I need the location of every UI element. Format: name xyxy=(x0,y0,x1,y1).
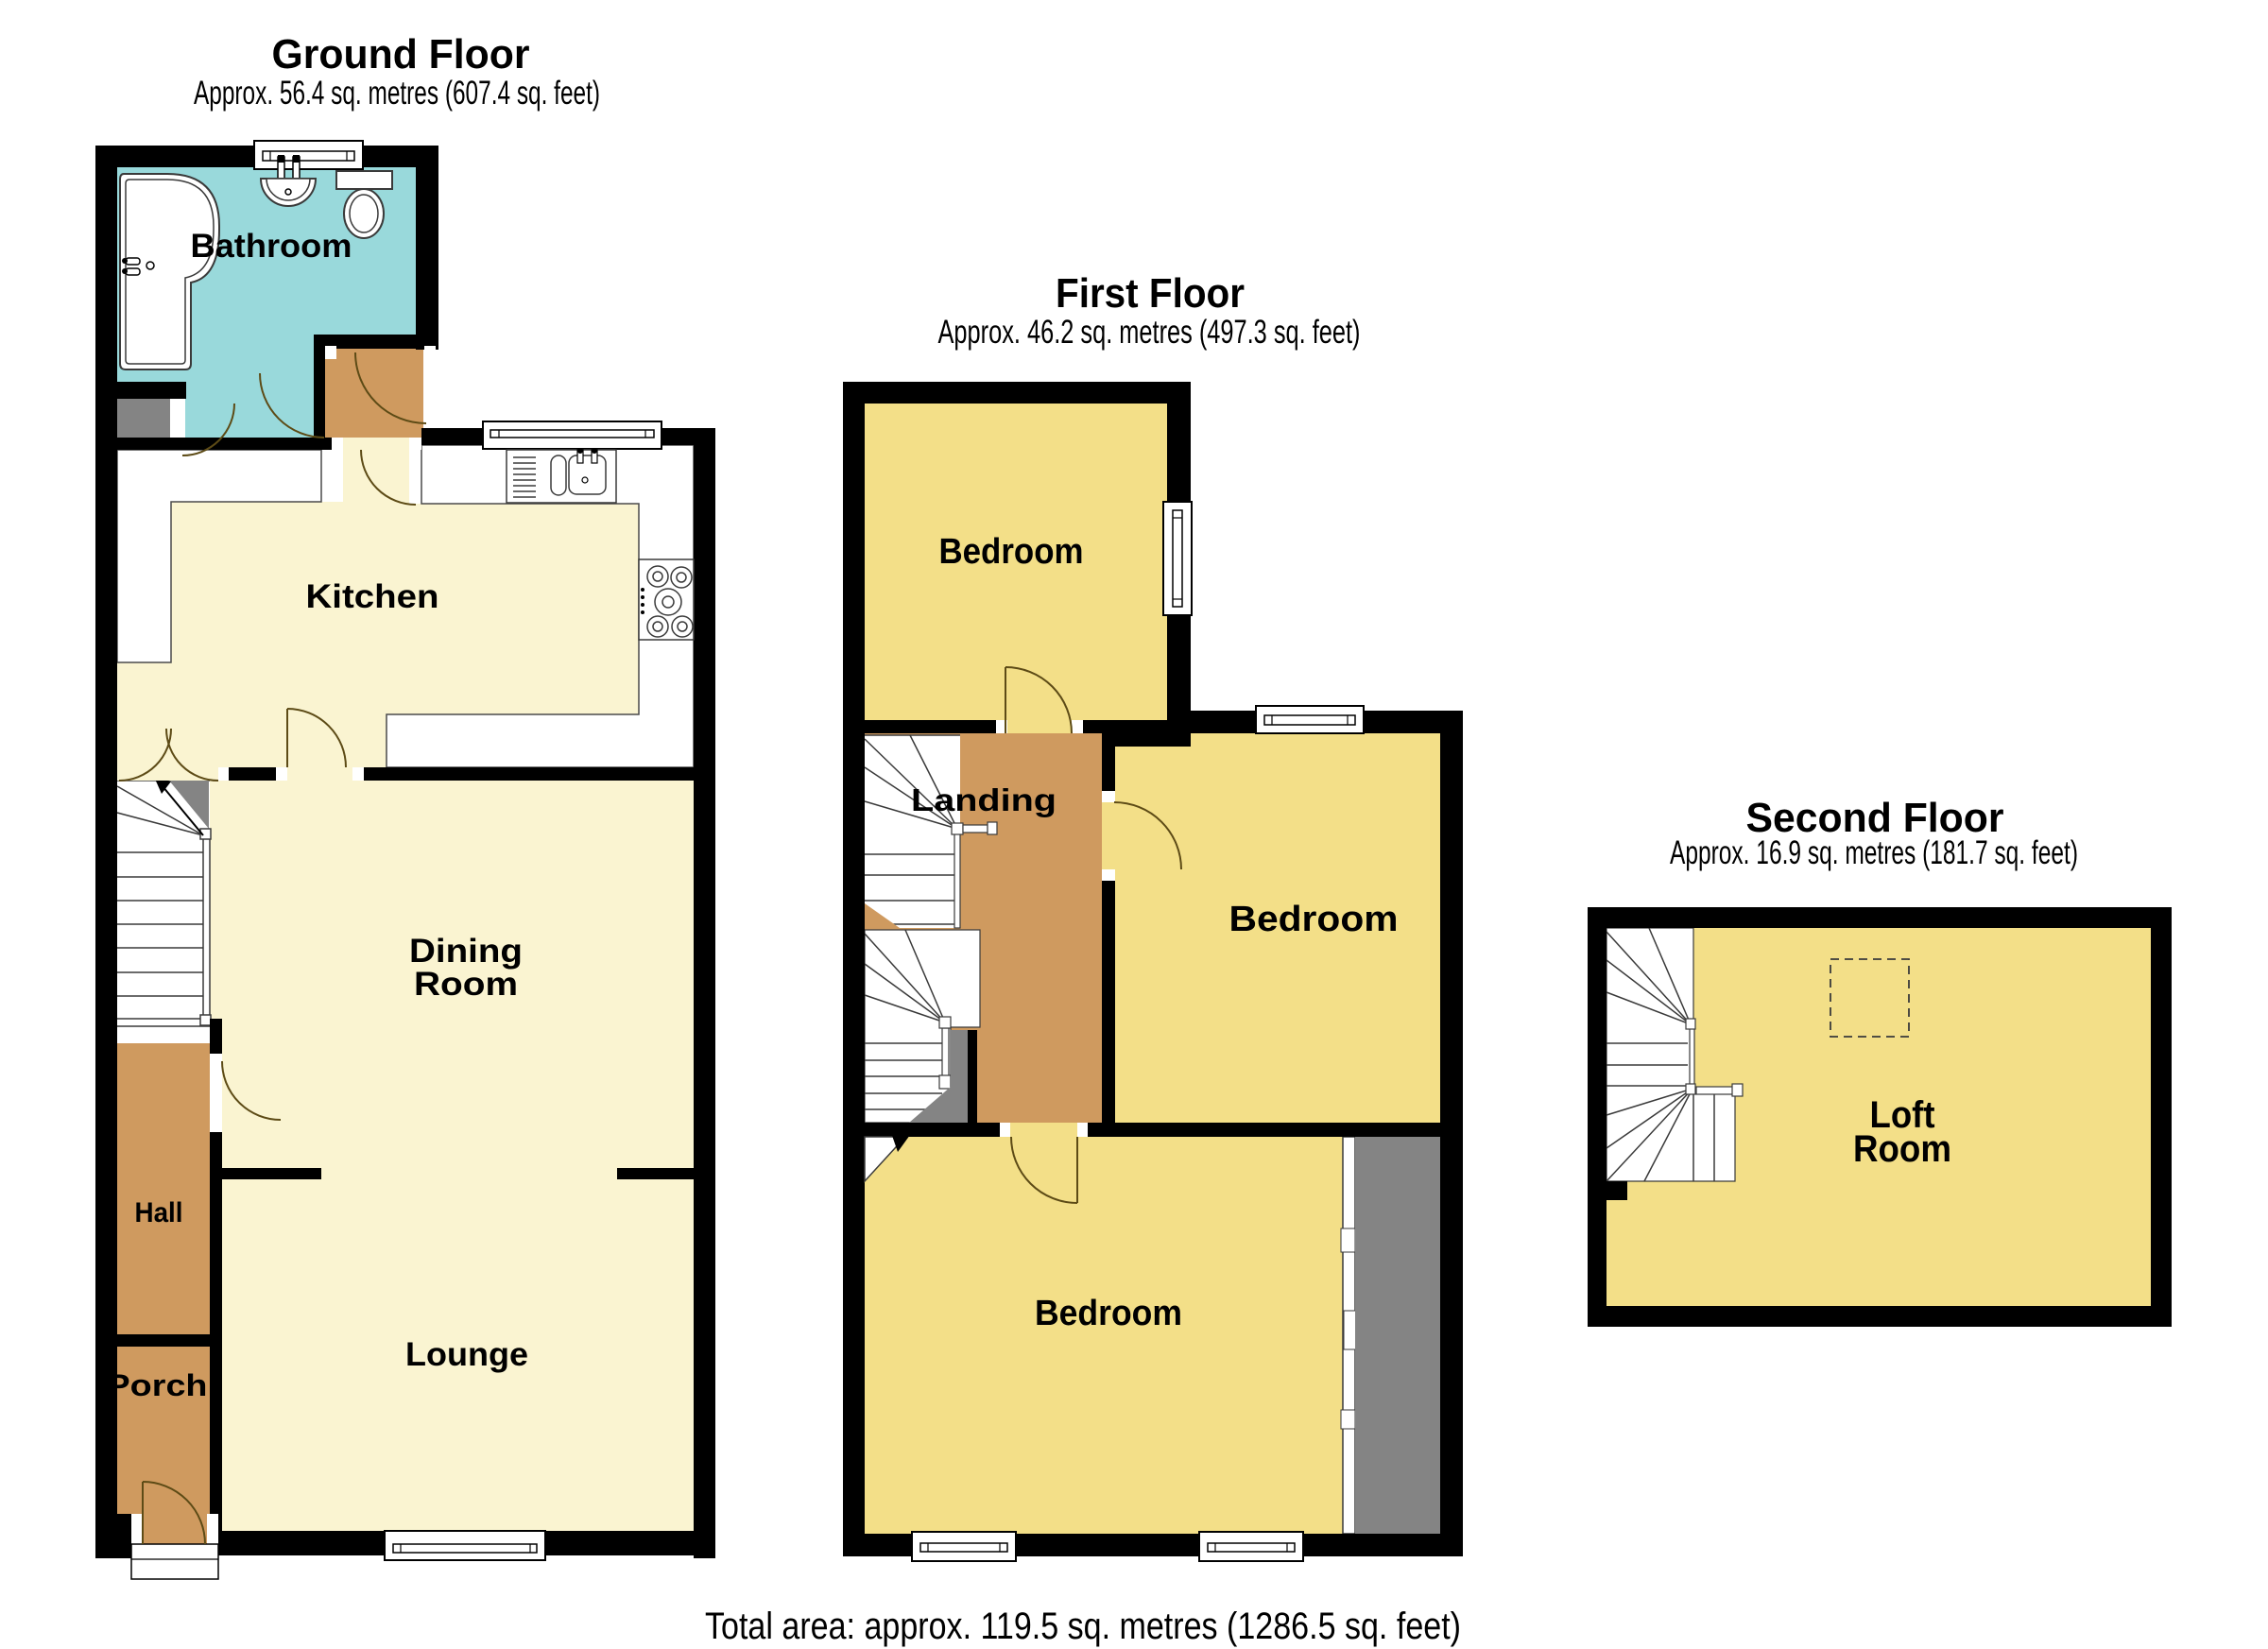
svg-text:Room: Room xyxy=(1853,1128,1951,1170)
svg-text:Bedroom: Bedroom xyxy=(1229,900,1399,939)
svg-text:Bathroom: Bathroom xyxy=(191,228,352,265)
svg-text:Lounge: Lounge xyxy=(405,1336,528,1373)
svg-text:Total area: approx. 119.5 sq.: Total area: approx. 119.5 sq. metres (12… xyxy=(705,1606,1461,1647)
svg-text:Approx. 46.2 sq. metres (497.3: Approx. 46.2 sq. metres (497.3 sq. feet) xyxy=(938,314,1361,351)
svg-text:Dining: Dining xyxy=(409,933,523,970)
svg-text:Room: Room xyxy=(414,966,518,1003)
svg-text:Landing: Landing xyxy=(911,782,1057,817)
svg-text:Ground Floor: Ground Floor xyxy=(272,31,530,77)
svg-text:Bedroom: Bedroom xyxy=(939,532,1084,572)
svg-text:Approx. 56.4 sq. metres (607.4: Approx. 56.4 sq. metres (607.4 sq. feet) xyxy=(194,75,600,112)
svg-text:Kitchen: Kitchen xyxy=(306,578,439,615)
svg-text:Approx. 16.9 sq. metres (181.7: Approx. 16.9 sq. metres (181.7 sq. feet) xyxy=(1670,834,2078,871)
svg-text:First Floor: First Floor xyxy=(1056,270,1245,317)
svg-text:Hall: Hall xyxy=(135,1197,183,1228)
svg-text:Porch: Porch xyxy=(107,1368,208,1402)
svg-text:Bedroom: Bedroom xyxy=(1035,1294,1182,1333)
